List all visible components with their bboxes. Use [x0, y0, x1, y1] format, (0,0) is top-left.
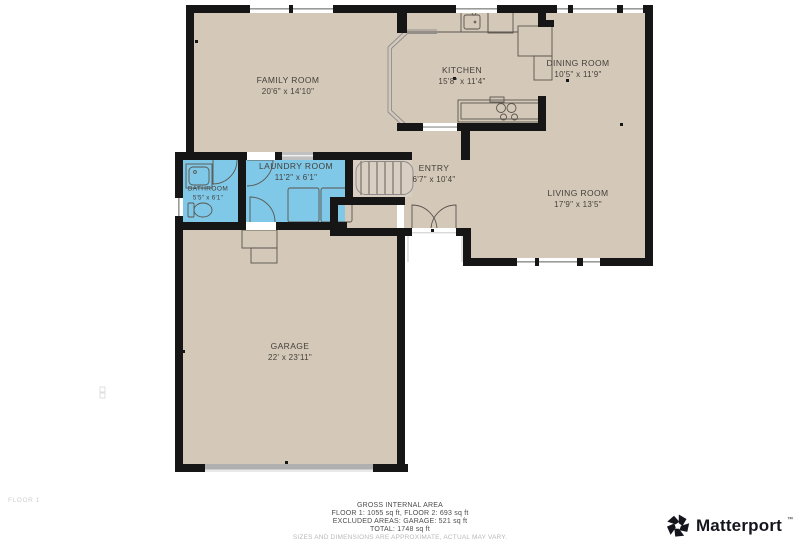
room-name: KITCHEN: [442, 65, 482, 75]
area-summary-title: GROSS INTERNAL AREA: [0, 502, 800, 510]
porch-edges: [408, 236, 462, 262]
brand-trademark: ™: [787, 517, 793, 523]
window-mullion: [617, 5, 623, 13]
room-dims: 5'5" x 6'1": [188, 194, 228, 203]
wall-dining-west-lower: [538, 96, 546, 131]
room-dims: 11'2" x 6'1": [259, 172, 333, 183]
room-dims: 20'6" x 14'10": [257, 86, 320, 97]
matterport-logo: Matterport™: [665, 513, 793, 539]
window-mullion: [289, 5, 293, 13]
wall-entry-front-left: [400, 228, 412, 236]
brand-wordmark: Matterport: [696, 516, 782, 536]
room-label-garage: GARAGE 22' x 23'11": [268, 341, 312, 363]
matterport-icon: [665, 513, 691, 539]
room-label-kitchen: KITCHEN 15'8" x 11'4": [438, 65, 485, 87]
wall-laundry-east: [345, 158, 353, 205]
room-dims: 17'9" x 13'5": [547, 199, 608, 210]
doorway-laundry: [247, 152, 275, 160]
wall-entry-living: [461, 131, 470, 160]
room-dims: 6'7" x 10'4": [412, 174, 455, 185]
room-dims: 10'5" x 11'9": [547, 69, 610, 80]
wall-east: [645, 5, 653, 266]
room-label-bathroom: BATHROOM 5'5" x 6'1": [188, 186, 228, 203]
window-mullion: [535, 258, 539, 266]
wall-kitchen-family-divider: [397, 5, 407, 33]
room-label-family-room: FAMILY ROOM 20'6" x 14'10": [257, 75, 320, 97]
room-name: FAMILY ROOM: [257, 75, 320, 85]
room-dims: 22' x 23'11": [268, 352, 312, 363]
window-mullion: [568, 5, 573, 13]
wall-closet-north: [333, 197, 405, 205]
room-label-entry: ENTRY 6'7" x 10'4": [412, 163, 455, 185]
room-name: DINING ROOM: [547, 58, 610, 68]
room-label-dining-room: DINING ROOM 10'5" x 11'9": [547, 58, 610, 80]
wall-kitchen-dining-stub: [538, 20, 554, 27]
floorplan-canvas: FAMILY ROOM 20'6" x 14'10" KITCHEN 15'8"…: [0, 0, 800, 546]
room-dims: 15'8" x 11'4": [438, 76, 485, 87]
wall-bathroom-east: [238, 158, 246, 230]
room-name: LIVING ROOM: [547, 188, 608, 198]
room-name: LAUNDRY ROOM: [259, 161, 333, 171]
room-name: GARAGE: [271, 341, 310, 351]
wall-kitchen-south: [397, 123, 546, 131]
floorplan-drawing: [0, 0, 800, 546]
scale-mark: [100, 387, 105, 398]
wall-west-upper: [186, 5, 194, 160]
room-label-living-room: LIVING ROOM 17'9" x 13'5": [547, 188, 608, 210]
stairs-area: [353, 160, 412, 197]
room-name: BATHROOM: [188, 186, 228, 193]
doorway-laundry-garage: [246, 222, 276, 230]
room-label-laundry-room: LAUNDRY ROOM 11'2" x 6'1": [259, 161, 333, 183]
window-mullion: [577, 258, 583, 266]
room-name: ENTRY: [419, 163, 450, 173]
